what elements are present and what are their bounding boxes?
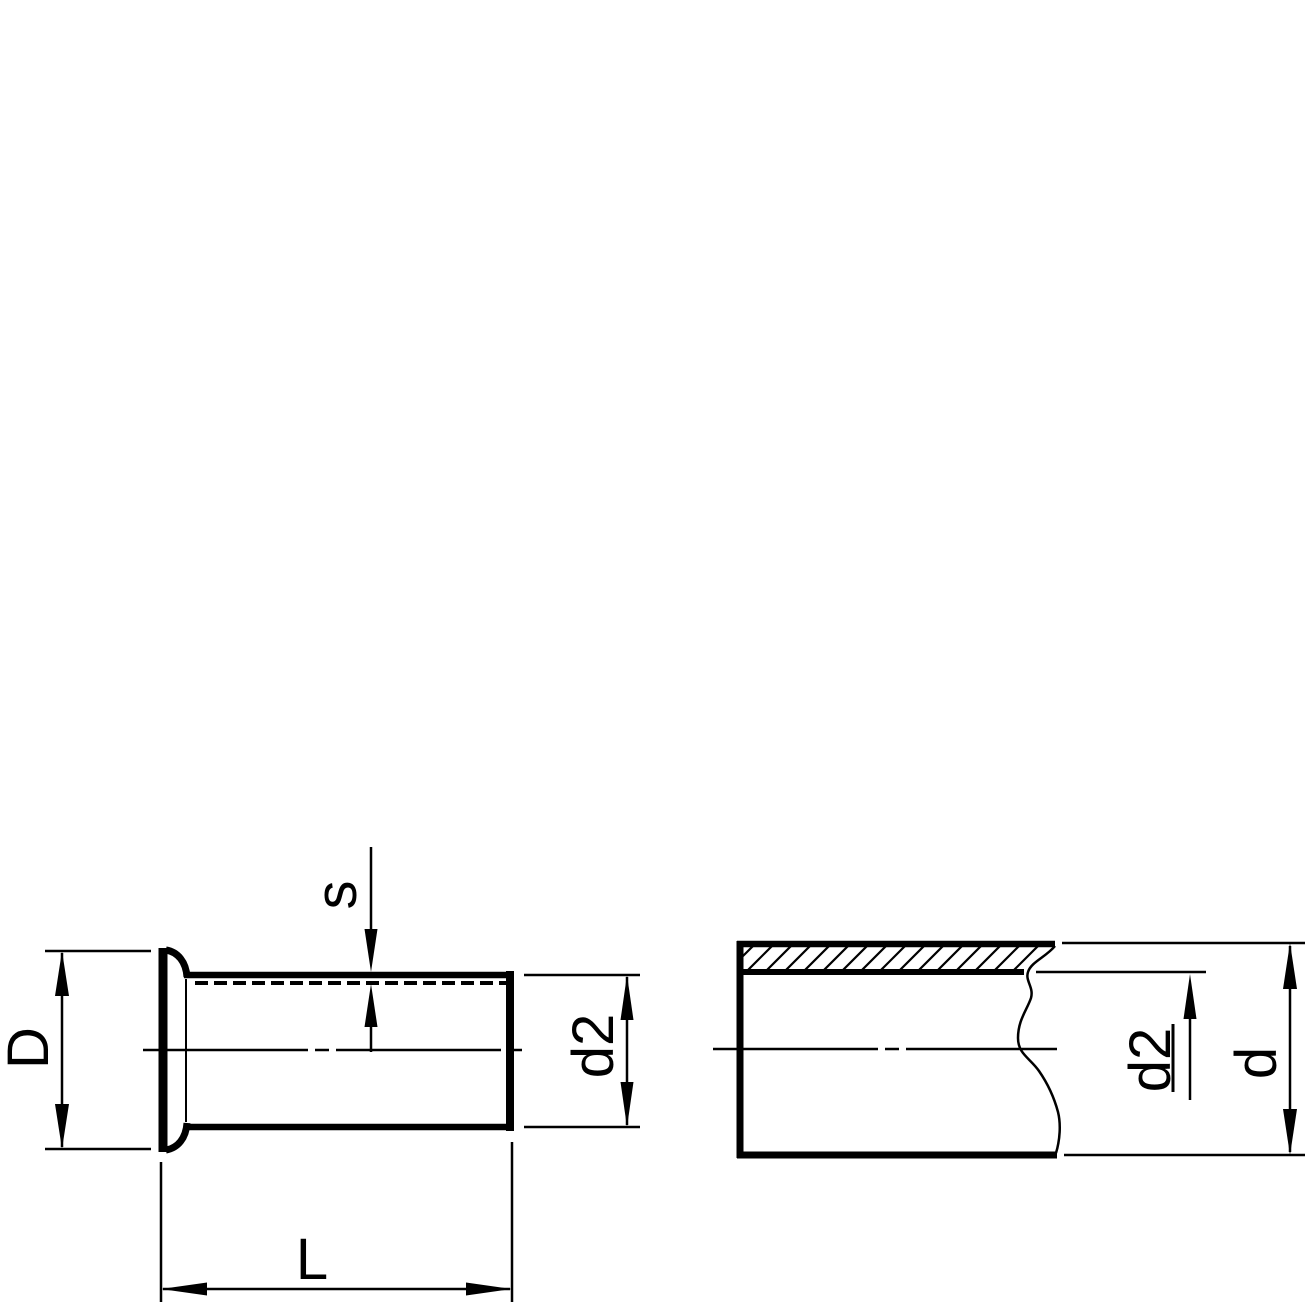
dim-d2-section-label: d2 — [1118, 1028, 1183, 1093]
dim-L-label: L — [296, 1227, 328, 1292]
ferrule-technical-drawing: D s d2 L — [0, 0, 1308, 1308]
dim-s-label: s — [304, 881, 369, 910]
dim-d-label: d — [1224, 1047, 1289, 1079]
drawing-canvas: D s d2 L — [0, 0, 1308, 1308]
dim-d2-side-label: d2 — [561, 1014, 626, 1079]
drawing-background — [0, 0, 1308, 1308]
dim-D-label: D — [0, 1027, 61, 1069]
